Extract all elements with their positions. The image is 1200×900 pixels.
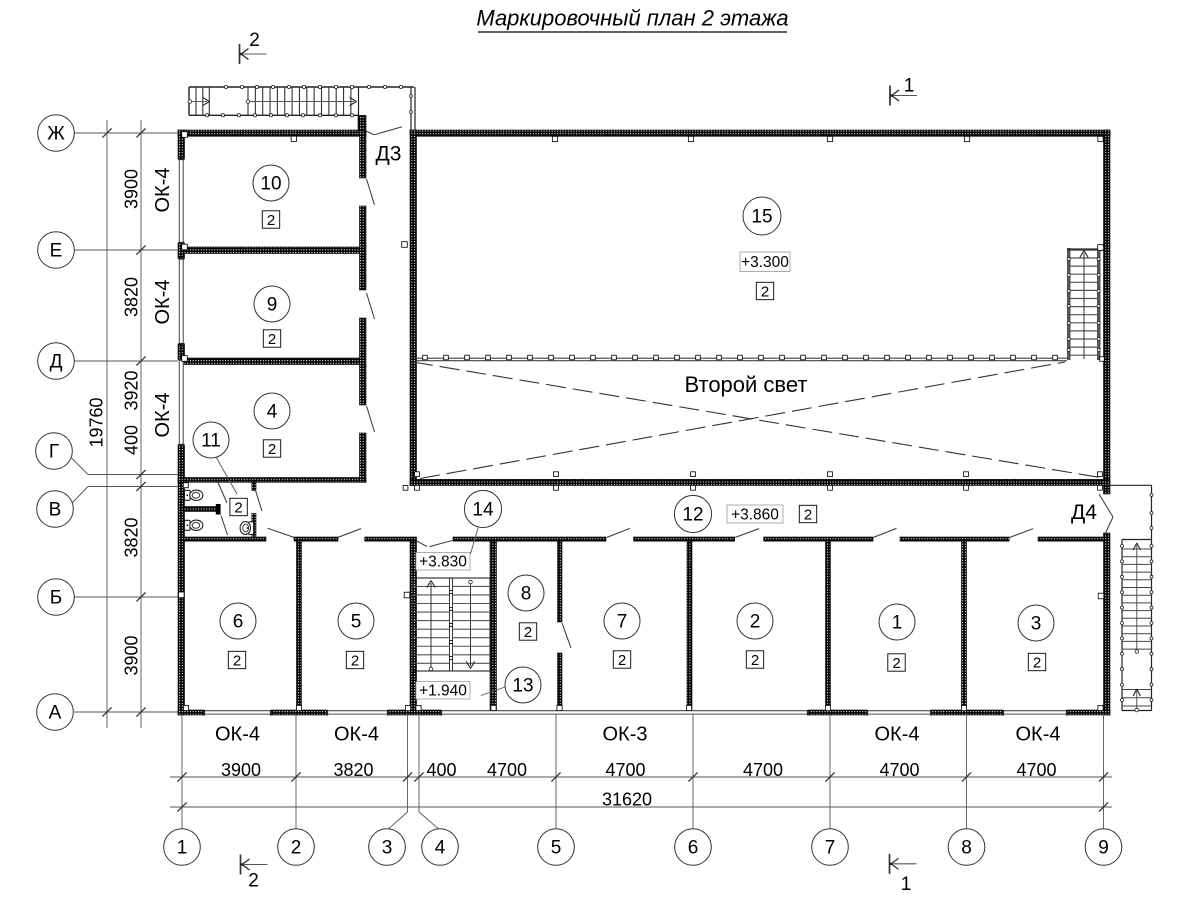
- svg-text:2: 2: [234, 499, 242, 516]
- svg-text:2: 2: [761, 283, 769, 300]
- svg-text:2: 2: [804, 506, 812, 523]
- svg-text:3820: 3820: [333, 760, 373, 780]
- svg-text:2: 2: [750, 612, 761, 633]
- svg-text:9: 9: [1098, 838, 1109, 859]
- svg-text:3900: 3900: [122, 635, 142, 675]
- svg-text:ОК-4: ОК-4: [334, 724, 379, 746]
- svg-text:ОК-4: ОК-4: [215, 724, 260, 746]
- svg-text:14: 14: [472, 500, 494, 521]
- svg-text:3820: 3820: [122, 517, 142, 557]
- svg-text:1: 1: [901, 874, 912, 895]
- svg-text:ОК-4: ОК-4: [1016, 724, 1061, 746]
- svg-text:2: 2: [351, 652, 359, 669]
- svg-text:ОК-4: ОК-4: [152, 168, 174, 213]
- svg-text:Маркировочный план 2 этажа: Маркировочный план 2 этажа: [476, 6, 788, 31]
- svg-text:1: 1: [892, 613, 903, 634]
- svg-text:Г: Г: [49, 442, 59, 463]
- svg-text:ОК-4: ОК-4: [152, 393, 174, 438]
- svg-text:10: 10: [260, 174, 281, 195]
- svg-text:6: 6: [688, 838, 699, 859]
- svg-text:Б: Б: [50, 588, 62, 609]
- svg-text:Д3: Д3: [376, 143, 402, 166]
- svg-text:4700: 4700: [879, 760, 919, 780]
- svg-text:В: В: [49, 500, 62, 521]
- svg-text:7: 7: [825, 838, 836, 859]
- svg-text:2: 2: [618, 652, 626, 669]
- svg-text:Д: Д: [50, 352, 63, 373]
- svg-text:4: 4: [267, 402, 278, 423]
- svg-text:12: 12: [682, 505, 703, 526]
- svg-text:8: 8: [961, 838, 972, 859]
- svg-text:5: 5: [551, 838, 562, 859]
- svg-text:+3.860: +3.860: [731, 506, 779, 523]
- svg-text:5: 5: [351, 612, 362, 633]
- svg-text:400: 400: [426, 760, 456, 780]
- svg-text:1: 1: [177, 838, 188, 859]
- svg-text:13: 13: [512, 676, 533, 697]
- svg-text:6: 6: [233, 612, 244, 633]
- svg-text:7: 7: [617, 612, 628, 633]
- svg-text:2: 2: [892, 655, 900, 672]
- svg-text:3820: 3820: [122, 277, 142, 317]
- svg-text:15: 15: [751, 207, 772, 228]
- svg-text:2: 2: [291, 838, 302, 859]
- svg-text:Д4: Д4: [1071, 501, 1097, 524]
- svg-text:2: 2: [249, 30, 260, 51]
- svg-text:1: 1: [904, 76, 915, 97]
- svg-text:А: А: [49, 703, 62, 724]
- svg-text:2: 2: [248, 871, 259, 892]
- svg-text:Второй свет: Второй свет: [685, 372, 808, 397]
- svg-text:3: 3: [1031, 614, 1042, 635]
- svg-text:+3.830: +3.830: [419, 554, 467, 571]
- svg-text:2: 2: [267, 212, 275, 229]
- svg-text:2: 2: [268, 331, 276, 348]
- svg-text:8: 8: [521, 584, 532, 605]
- svg-text:ОК-4: ОК-4: [875, 724, 920, 746]
- svg-text:ОК-3: ОК-3: [603, 724, 648, 746]
- svg-text:4700: 4700: [605, 760, 645, 780]
- svg-text:9: 9: [267, 295, 278, 316]
- svg-text:2: 2: [524, 624, 532, 641]
- svg-text:2: 2: [233, 652, 241, 669]
- svg-text:2: 2: [1033, 654, 1041, 671]
- svg-text:4700: 4700: [743, 760, 783, 780]
- svg-text:Ж: Ж: [47, 124, 65, 145]
- svg-text:31620: 31620: [602, 790, 652, 810]
- svg-text:+1.940: +1.940: [419, 683, 467, 700]
- svg-text:3920: 3920: [122, 370, 142, 410]
- svg-text:4: 4: [435, 838, 446, 859]
- svg-text:3: 3: [382, 838, 393, 859]
- svg-text:3900: 3900: [221, 760, 261, 780]
- svg-text:11: 11: [201, 431, 221, 452]
- svg-text:3900: 3900: [122, 169, 142, 209]
- svg-text:Е: Е: [50, 241, 63, 262]
- svg-text:4700: 4700: [487, 760, 527, 780]
- svg-text:2: 2: [751, 652, 759, 669]
- svg-text:19760: 19760: [87, 397, 107, 447]
- svg-text:4700: 4700: [1016, 760, 1056, 780]
- svg-text:400: 400: [122, 425, 142, 455]
- svg-text:2: 2: [268, 441, 276, 458]
- svg-text:ОК-4: ОК-4: [152, 280, 174, 325]
- svg-text:+3.300: +3.300: [741, 254, 789, 271]
